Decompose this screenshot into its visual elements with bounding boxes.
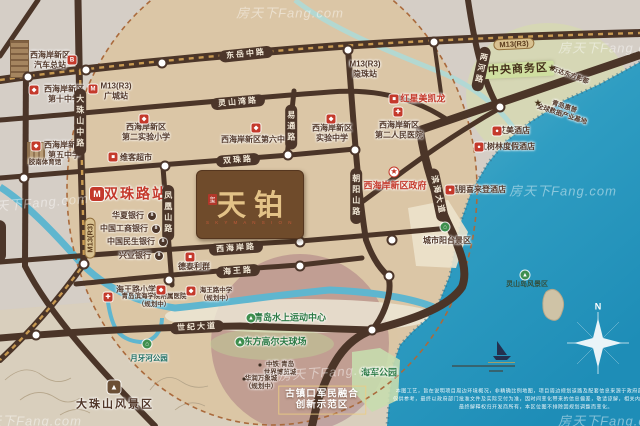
poi-no6-middle-school: 西海岸新区第六中学 <box>221 135 293 145</box>
hospital-icon-binhai-college: ✚ <box>104 293 113 302</box>
poi-four-points-sheraton: 福朋喜来登酒店 <box>450 185 506 195</box>
road-label-yitong-rd: 易通路 <box>285 105 297 150</box>
poi-guzhenkou-demo-zone: 古镇口军民融合 创新示范区 <box>278 386 366 415</box>
location-map: 玺 天铂 S K Y M A N S I O N 东岳中路灵山湾路双珠路西海岸路… <box>0 0 640 426</box>
poi-binhai-college-hospital: 青岛滨海学院附属医院 （规划中） <box>122 293 187 309</box>
watersport-icon: ▲ <box>247 314 256 323</box>
metro-station-dot-8 <box>283 150 294 161</box>
poi-lingshan-island-scenic: 灵山岛风景区 <box>506 281 548 289</box>
edge-road-capsule <box>0 220 6 262</box>
mountain-icon-dazhushan: ▲ <box>108 381 121 394</box>
school-icon-haiwang-middle: ◆ <box>187 287 196 296</box>
disclaimer-line-3: 最终解释权归开发商所有，本区位图不排除因规划调整而变化。 <box>459 404 613 411</box>
mall-icon-redstar: ■ <box>390 95 399 104</box>
poi-shuangzhu-road-station: 双珠路站 <box>104 186 168 203</box>
metro-station-dot-4 <box>429 37 440 48</box>
scenic-icon-city-balcony: ⌂ <box>441 223 450 232</box>
fang-watermark-1: 房天下Fang.com <box>558 38 640 57</box>
brand-mark-line-2 <box>489 370 503 372</box>
metro-station-dot-7 <box>160 161 171 172</box>
poi-dazhushan-scenic: 大珠山风景区 <box>76 398 154 411</box>
poi-icbc-bank: 中国工商银行 <box>100 224 148 234</box>
metro-station-dot-9 <box>350 145 361 156</box>
metro-badge-m13-top: M13(R3) <box>493 37 535 50</box>
golf-icon: ▲ <box>236 338 245 347</box>
market-icon-detailiqun: ■ <box>186 253 195 262</box>
poi-haiwang-middle: 海王路中学 （规划中） <box>200 287 233 303</box>
poi-water-sports-center: 青岛水上运动中心 <box>254 313 326 324</box>
poi-no2-peoples-hospital: 西海岸新区 第二人民医院 <box>375 120 423 139</box>
metro-station-dot-5 <box>495 102 506 113</box>
metro-station-dot-13 <box>387 235 398 246</box>
metro-station-dot-11 <box>164 275 175 286</box>
fang-watermark-6: 房天下Fang.com <box>0 411 82 426</box>
hotel-icon-mangrove: ● <box>475 143 484 152</box>
lingshan-island <box>543 289 564 320</box>
metro-station-dot-12 <box>295 261 306 272</box>
road-label-dazhushan-middle-rd: 大珠山中路 <box>74 89 86 156</box>
school-icon-no5: ◆ <box>32 142 41 151</box>
poi-mangrove-resort-hotel: 红树林度假酒店 <box>479 142 535 152</box>
fang-watermark-0: 房天下Fang.com <box>236 3 344 22</box>
metro-station-dot-3 <box>343 45 354 56</box>
fang-watermark-5: 房天下Fang.com <box>558 411 640 426</box>
metro-station-icon-shuangzhu: M <box>90 187 104 201</box>
poi-weike-market: 维客超市 <box>120 153 152 163</box>
poi-huaxia-bank-yen-icon: ¥ <box>148 212 156 220</box>
poi-jiaonan-gym: 胶南体育馆 <box>29 159 62 167</box>
metro-station-dot-0 <box>81 65 92 76</box>
project-subtitle: S K Y M A N S I O N <box>197 220 303 225</box>
metro-station-dot-17 <box>79 259 90 270</box>
hospital-icon-no2: ✚ <box>394 108 403 117</box>
metro-station-icon-guangcheng: M <box>89 85 98 94</box>
poi-mixc: 华润万象城 （规划中） <box>245 375 278 391</box>
project-logo: 玺 天铂 S K Y M A N S I O N <box>196 170 304 239</box>
metro-station-dot-15 <box>367 325 378 336</box>
bullet-icon-expo <box>259 364 262 367</box>
poi-moon-river-park: 月牙河公园 <box>130 354 168 363</box>
brand-mark-line-1 <box>452 365 515 367</box>
road-label-fenghuangshan-rd: 凤凰山路 <box>162 185 174 241</box>
metro-station-dot-6 <box>19 173 30 184</box>
school-icon-exp-middle: ◆ <box>327 115 336 124</box>
star-icon-wanda: ★ <box>548 64 557 73</box>
market-icon-weike: ■ <box>109 153 118 162</box>
school-icon-no2-exp-primary: ◆ <box>140 115 149 124</box>
disclaimer-line-1: 本图工艺，旨在说明项目周边环境概况，非精确比例地图，项目周边规划道路及配套信息来… <box>396 388 640 395</box>
poi-redstar-macalline: 红星美凯龙 <box>400 94 445 105</box>
compass-n-label: N <box>595 302 602 313</box>
road-label-chaoyangshan-rd: 朝阳山路 <box>350 168 362 224</box>
poi-cib-bank: 兴业银行 <box>119 251 151 261</box>
government-star-icon: ★ <box>389 167 400 178</box>
disclaimer-line-2: 仅供参考，最终以政府部门批准文件及实际交付为准，因时间变化带来的信息偏差，敬请谅… <box>393 396 640 403</box>
poi-minsheng-bank-yen-icon: ¥ <box>159 238 167 246</box>
pavilion-icon-moon-river: ⌂ <box>143 340 152 349</box>
poi-huaxia-bank: 华夏银行 <box>112 211 144 221</box>
metro-station-dot-14 <box>384 271 395 282</box>
poi-cib-bank-yen-icon: ¥ <box>155 252 163 260</box>
star-icon-hp-base: ★ <box>534 99 543 108</box>
school-icon-haiwang-primary: ◆ <box>157 286 166 295</box>
school-icon-no10: ◆ <box>30 86 39 95</box>
poi-station-yinzhu: M13(R3) 隐珠站 <box>349 59 380 78</box>
poi-oriental-golf: 东方高尔夫球场 <box>243 337 306 348</box>
metro-station-dot-16 <box>31 330 42 341</box>
school-icon-no6: ◆ <box>252 124 261 133</box>
poi-station-guangcheng: M13(R3) 广城站 <box>100 81 131 100</box>
bus-terminal-icon: B <box>68 56 77 65</box>
poi-meridien-hotel: 艾美酒店 <box>498 126 530 136</box>
poi-minsheng-bank: 中国民生银行 <box>107 237 155 247</box>
poi-bus-terminal: 西海岸新区 汽车总站 <box>30 50 70 69</box>
poi-detailiqun: 德泰利群 <box>178 262 210 272</box>
bullet-icon-mixc <box>243 378 246 381</box>
hotel-icon-sheraton: ● <box>446 186 455 195</box>
road-west-vertical <box>25 60 26 266</box>
poi-city-balcony-scenic: 城市阳台景区 <box>423 236 471 246</box>
project-title: 天铂 <box>197 182 303 224</box>
metro-station-dot-1 <box>23 72 34 83</box>
island-icon-lingshan: ▲ <box>521 271 530 280</box>
poi-district-government: 西海岸新区政府 <box>363 181 426 192</box>
fang-watermark-3: 房天下Fang.com <box>509 181 617 200</box>
metro-badge-m13-vertical: M13(R3) <box>85 217 96 258</box>
poi-no2-exp-primary: 西海岸新区 第二实验小学 <box>122 122 170 141</box>
metro-station-dot-2 <box>157 58 168 69</box>
poi-icbc-bank-yen-icon: ¥ <box>152 225 160 233</box>
poi-exp-middle-school: 西海岸新区 实验中学 <box>312 123 352 142</box>
hotel-icon-meridien: ● <box>493 127 502 136</box>
